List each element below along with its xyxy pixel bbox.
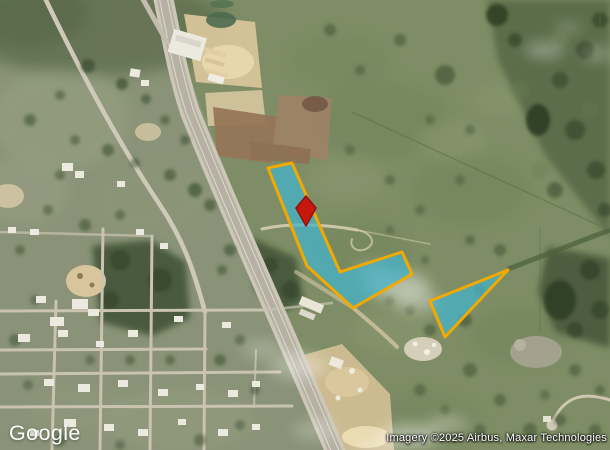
google-logo[interactable]: Google <box>9 421 81 446</box>
satellite-imagery <box>0 0 610 450</box>
imagery-attribution: Imagery ©2025 Airbus, Maxar Technologies <box>386 432 607 444</box>
map-canvas[interactable]: Google Imagery ©2025 Airbus, Maxar Techn… <box>0 0 610 450</box>
